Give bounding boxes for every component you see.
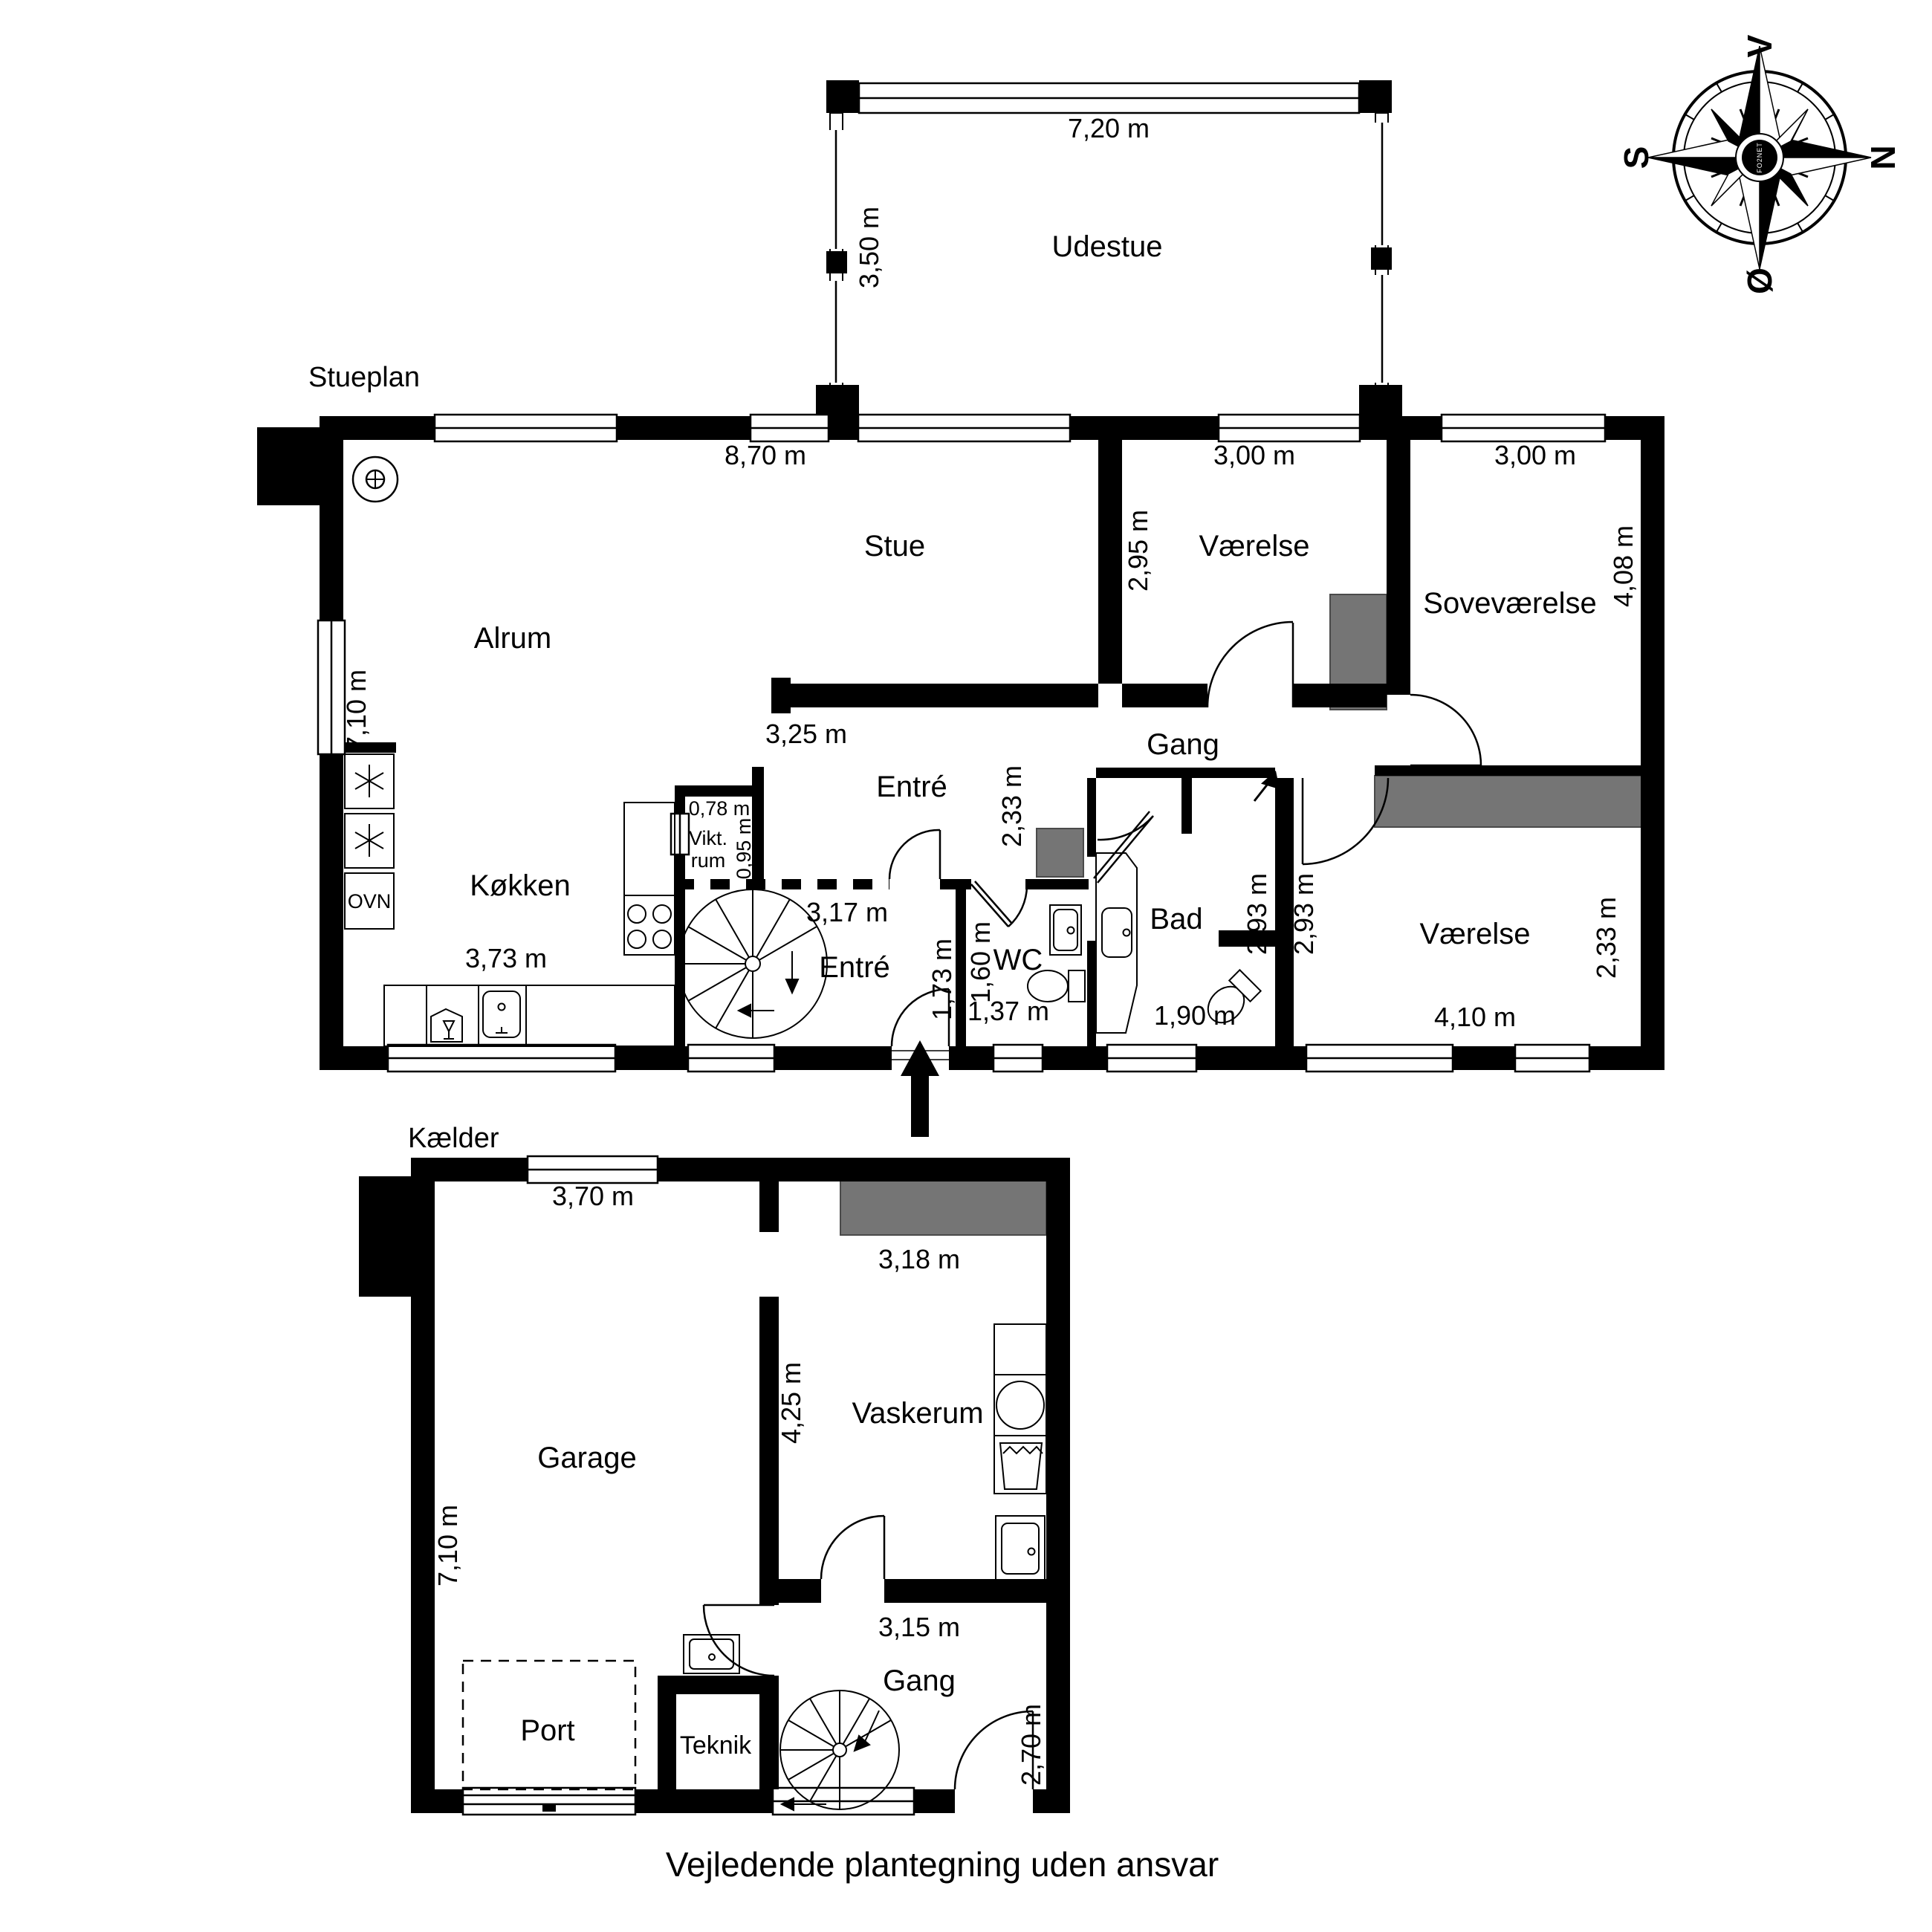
wc-toilet-tank — [1069, 970, 1085, 1002]
stair-center — [833, 1743, 846, 1757]
room-label-teknik: Teknik — [680, 1731, 752, 1760]
dim-sovevaerelse-width: 3,00 m — [1494, 440, 1576, 470]
room-label-entre-upper: Entré — [876, 771, 947, 803]
dim-wc-height: 1,60 m — [965, 921, 996, 1003]
dim-kaelder-gang-width: 3,15 m — [878, 1612, 960, 1642]
dim-udestue-width: 7,20 m — [1068, 113, 1150, 143]
floorplan-page: FO2NET V N S Ø Stueplan 7,20 m Udestue 3… — [0, 0, 1932, 1932]
compass-letter-south: S — [1617, 146, 1656, 169]
bad-sink-drain — [1124, 930, 1130, 936]
compass-letter-east: Ø — [1740, 268, 1779, 294]
room-label-wc: WC — [993, 944, 1043, 976]
room-label-bad: Bad — [1150, 903, 1202, 936]
dim-vikt-height: 0,95 m — [733, 818, 755, 880]
dim-udestue-depth: 3,50 m — [854, 207, 884, 288]
dim-entre-width: 3,17 m — [806, 897, 888, 927]
dim-garage-width: 3,70 m — [552, 1181, 634, 1211]
chimney-stove — [353, 457, 398, 502]
dim-stue-syd: 3,25 m — [765, 719, 847, 749]
dim-vaskerum-height: 4,25 m — [776, 1362, 806, 1444]
dim-wc-width: 1,37 m — [967, 996, 1049, 1026]
dim-vaerelse-nord-width: 3,00 m — [1213, 440, 1295, 470]
room-label-vaerelse-syd: Værelse — [1420, 918, 1531, 950]
room-label-entre-lower: Entré — [819, 951, 890, 984]
compass-watermark: FO2NET — [1756, 142, 1763, 173]
dim-garage-height: 7,10 m — [432, 1505, 463, 1586]
room-label-vaskerum: Vaskerum — [852, 1397, 983, 1430]
room-label-koekken: Køkken — [470, 869, 571, 902]
dim-alrum-height: 7,10 m — [341, 670, 372, 751]
dim-vaskerum-width: 3,18 m — [878, 1244, 960, 1274]
dim-bad-height: 2,93 m — [1242, 873, 1272, 955]
dim-kaelder-gang-height: 2,70 m — [1016, 1704, 1046, 1786]
room-label-gang: Gang — [1147, 728, 1219, 761]
dim-sovevaerelse-height: 4,08 m — [1608, 525, 1638, 607]
room-label-sovevaerelse: Soveværelse — [1423, 587, 1596, 620]
kaelder-title: Kælder — [408, 1123, 499, 1154]
room-label-alrum: Alrum — [474, 622, 551, 655]
dim-bad-width: 1,90 m — [1154, 1000, 1236, 1031]
dim-entre-niche: 1,73 m — [927, 939, 957, 1020]
room-label-vikt-1: Vikt. — [689, 827, 727, 849]
room-label-udestue: Udestue — [1052, 230, 1163, 263]
dim-stue-width: 8,70 m — [724, 440, 806, 470]
dim-vaerelse-syd-height: 2,33 m — [1591, 897, 1621, 979]
dim-vaerelse-syd-neck: 2,93 m — [1288, 873, 1319, 955]
room-label-kaelder-gang: Gang — [883, 1664, 956, 1697]
label-ovn: OVN — [348, 890, 392, 912]
dim-vikt-width: 0,78 m — [689, 797, 751, 820]
floorplan-drawing: FO2NET V N S Ø Stueplan 7,20 m Udestue 3… — [0, 0, 1932, 1932]
room-label-port: Port — [520, 1714, 574, 1747]
stueplan-title: Stueplan — [308, 362, 420, 393]
dim-vaerelse-syd-width: 4,10 m — [1434, 1002, 1516, 1032]
stair-center — [745, 956, 760, 971]
wc-sink-drain — [1068, 927, 1074, 934]
room-label-vaerelse-nord: Værelse — [1199, 530, 1310, 563]
room-label-stue: Stue — [864, 530, 925, 563]
garage-door-tick — [542, 1804, 556, 1812]
dim-koekken-width: 3,73 m — [465, 943, 547, 973]
room-label-garage: Garage — [537, 1442, 636, 1474]
compass-letter-north: N — [1864, 145, 1902, 169]
dim-vaerelse-nord-height: 2,95 m — [1123, 510, 1153, 591]
room-label-vikt-2: rum — [691, 849, 726, 872]
footer-disclaimer: Vejledende plantegning uden ansvar — [666, 1845, 1219, 1884]
dim-entre-upper-height: 2,33 m — [996, 765, 1027, 847]
compass-letter-west: V — [1740, 34, 1779, 57]
